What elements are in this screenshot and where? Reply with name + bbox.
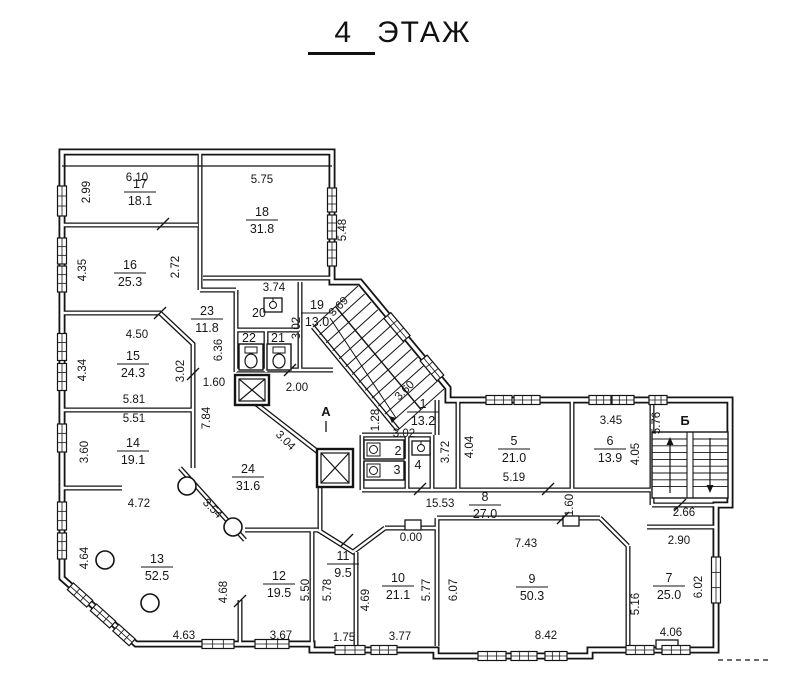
room-label-5: 521.0: [498, 434, 530, 465]
dimension-label: 4.05: [630, 443, 642, 465]
room-label-15: 1524.3: [117, 349, 149, 380]
window-icon: [612, 396, 634, 405]
dimension-label: 3.02: [393, 428, 415, 440]
dimension-label: 3.02: [291, 317, 303, 339]
dimension-label: 3.77: [389, 631, 411, 643]
column: [96, 551, 114, 569]
window-icon: [328, 188, 337, 212]
dimension-label: 4.63: [173, 630, 195, 642]
room-label-7: 725.0: [653, 571, 685, 602]
column: [141, 594, 159, 612]
dimension-label: 1.28: [370, 409, 382, 431]
dimension-label: 1.60: [203, 377, 225, 389]
dimension-label: 2.72: [170, 256, 182, 278]
dimension-label: 2.66: [673, 507, 695, 519]
window-icon: [514, 396, 540, 405]
dimension-label: 4.69: [360, 589, 372, 611]
room-area: 9.5: [334, 566, 351, 580]
column: [224, 518, 242, 536]
section-mark: Б: [680, 413, 689, 428]
room-number: 23: [200, 304, 214, 318]
room-label-12: 1219.5: [263, 569, 295, 600]
window-icon: [371, 646, 397, 655]
window-icon: [420, 355, 444, 381]
dimension-label: 2.00: [286, 382, 308, 394]
room-number: 22: [242, 331, 256, 345]
room-number: 2: [395, 444, 402, 458]
dimension-label: 3.72: [440, 441, 452, 463]
window-icon: [58, 533, 67, 559]
dimension-label: 4.34: [77, 358, 89, 381]
room-label-8: 827.0: [469, 490, 501, 521]
dimension-label: 5.76: [651, 412, 663, 434]
dimension-label: 5.50: [300, 579, 312, 601]
dimension-label: 3.69: [327, 295, 351, 319]
dimension-tick: [341, 534, 353, 546]
dimension-label: 5.81: [123, 394, 145, 406]
dimension-label: 4.04: [464, 435, 476, 458]
dimension-label: 4.64: [79, 546, 91, 569]
window-icon: [626, 646, 654, 655]
dimension-label: 3.02: [175, 360, 187, 382]
dimension-label: 6.36: [213, 339, 225, 361]
window-icon: [486, 396, 512, 405]
room-number: 9: [529, 572, 536, 586]
dimension-label: 4.06: [660, 627, 682, 639]
room-label-19: 1913.0: [301, 298, 333, 329]
room-number: 18: [255, 205, 269, 219]
room-label-13: 1352.5: [141, 552, 173, 583]
wall-niche: [405, 520, 421, 530]
dimension-label: 5.77: [421, 579, 433, 601]
room-number: 4: [415, 458, 422, 472]
room-area: 11.8: [195, 321, 218, 335]
room-area: 52.5: [145, 569, 169, 583]
wall-niche: [563, 516, 579, 526]
room-number: 12: [272, 569, 286, 583]
room-number: 13: [150, 552, 164, 566]
window-icon: [328, 215, 337, 239]
room-area: 31.6: [236, 479, 260, 493]
room-area: 13.0: [305, 315, 329, 329]
room-number: 8: [482, 490, 489, 504]
dimension-label: 7.43: [515, 538, 537, 550]
stairs-b: [652, 432, 728, 498]
toilet-icon: [267, 344, 291, 370]
sink-icon: [412, 441, 430, 455]
window-icon: [384, 313, 410, 342]
dimension-label: 0.00: [400, 532, 422, 544]
dimension-label: 5.48: [337, 219, 349, 241]
window-icon: [58, 334, 67, 361]
window-icon: [545, 652, 567, 661]
room-label-10: 1021.1: [382, 571, 414, 602]
window-icon: [589, 396, 611, 405]
room-number: 5: [511, 434, 518, 448]
dimension-label: 4.68: [218, 581, 230, 603]
room-number: 3: [394, 463, 401, 477]
room-number: 15: [126, 349, 140, 363]
elevator-shaft: [317, 449, 353, 487]
room-area: 19.5: [267, 586, 291, 600]
window-icon: [58, 364, 67, 391]
room-area: 13.9: [598, 451, 622, 465]
room-label-24: 2431.6: [232, 462, 264, 493]
window-icon: [67, 583, 92, 607]
window-icon: [712, 557, 721, 603]
dimension-label: 6.07: [448, 579, 460, 601]
dimension-label: 1.60: [564, 494, 576, 516]
room-number: 6: [607, 434, 614, 448]
window-icon: [58, 238, 67, 264]
dimension-label: 5.51: [123, 413, 145, 425]
dimension-label: 4.35: [77, 259, 89, 281]
interior-wall: [318, 528, 385, 552]
dimension-label: 4.50: [126, 329, 148, 341]
room-number: 16: [123, 258, 137, 272]
room-area: 21.1: [386, 588, 410, 602]
room-label-23: 2311.8: [191, 304, 223, 335]
dimension-label: 3.45: [600, 415, 622, 427]
dimension-label: 1.75: [333, 632, 355, 644]
room-area: 21.0: [502, 451, 526, 465]
window-icon: [202, 640, 234, 649]
room-number: 11: [337, 549, 350, 563]
window-icon: [511, 652, 537, 661]
interior-wall-core: [600, 518, 628, 546]
room-label-18: 1831.8: [246, 205, 278, 236]
room-area: 31.8: [250, 222, 274, 236]
elevator-shaft: [235, 375, 269, 405]
dimension-label: 3.74: [263, 282, 286, 294]
room-area: 18.1: [128, 194, 152, 208]
window-icon: [478, 652, 506, 661]
room-label-6: 613.9: [594, 434, 626, 465]
dimension-label: 6.02: [693, 576, 705, 598]
dimension-label: 5.16: [630, 593, 642, 615]
room-number: 7: [666, 571, 673, 585]
floor-number: 4: [308, 16, 375, 55]
room-area: 25.3: [118, 275, 142, 289]
room-number: 20: [252, 306, 266, 320]
dimension-label: 5.78: [322, 579, 334, 601]
dimension-label: 2.99: [81, 181, 93, 203]
room-number: 1: [420, 397, 427, 411]
room-area: 27.0: [473, 507, 497, 521]
dimension-label: 3.60: [79, 441, 91, 463]
room-label-9: 950.3: [516, 572, 548, 603]
room-area: 19.1: [121, 453, 145, 467]
dimension-label: 6.10: [126, 172, 148, 184]
room-label-1: 113.2: [407, 397, 439, 428]
room-number: 21: [271, 331, 285, 345]
room-label-16: 1625.3: [114, 258, 146, 289]
toilet-icon: [239, 344, 263, 370]
window-icon: [58, 186, 67, 216]
window-icon: [58, 266, 67, 292]
window-icon: [58, 424, 67, 452]
column: [178, 477, 196, 495]
window-icon: [649, 396, 667, 405]
window-icon: [113, 624, 135, 645]
dimension-label: 3.54: [200, 497, 225, 522]
room-number: 24: [241, 462, 255, 476]
room-label-14: 1419.1: [117, 436, 149, 467]
room-area: 24.3: [121, 366, 145, 380]
window-icon: [90, 604, 115, 628]
room-area: 50.3: [520, 589, 544, 603]
dimension-label: 5.75: [251, 174, 273, 186]
dimension-label: 15.53: [426, 498, 455, 510]
window-icon: [58, 502, 67, 530]
section-mark: А: [321, 404, 331, 419]
room-number: 10: [391, 571, 405, 585]
window-icon: [335, 646, 365, 655]
dimension-label: 4.72: [128, 498, 150, 510]
room-number: 14: [126, 436, 140, 450]
dimension-label: 7.84: [201, 406, 213, 429]
floor-word: ЭТАЖ: [375, 16, 478, 52]
dimension-label: 2.90: [668, 535, 690, 547]
floor-plan-canvas: 1718.11625.31831.82311.81913.01524.31419…: [0, 0, 786, 697]
floor-plan-page: 4ЭТАЖ 1718.11625.31831.82311.81913.01524…: [0, 0, 786, 697]
page-title: 4ЭТАЖ: [0, 16, 786, 55]
dimension-label: 8.42: [535, 630, 557, 642]
dimension-label: 5.19: [503, 472, 525, 484]
window-icon: [662, 646, 690, 655]
room-number: 19: [310, 298, 324, 312]
room-area: 25.0: [657, 588, 681, 602]
sink-icon: [264, 298, 282, 312]
room-area: 13.2: [411, 414, 435, 428]
dimension-label: 3.67: [270, 630, 292, 642]
window-icon: [328, 242, 337, 266]
